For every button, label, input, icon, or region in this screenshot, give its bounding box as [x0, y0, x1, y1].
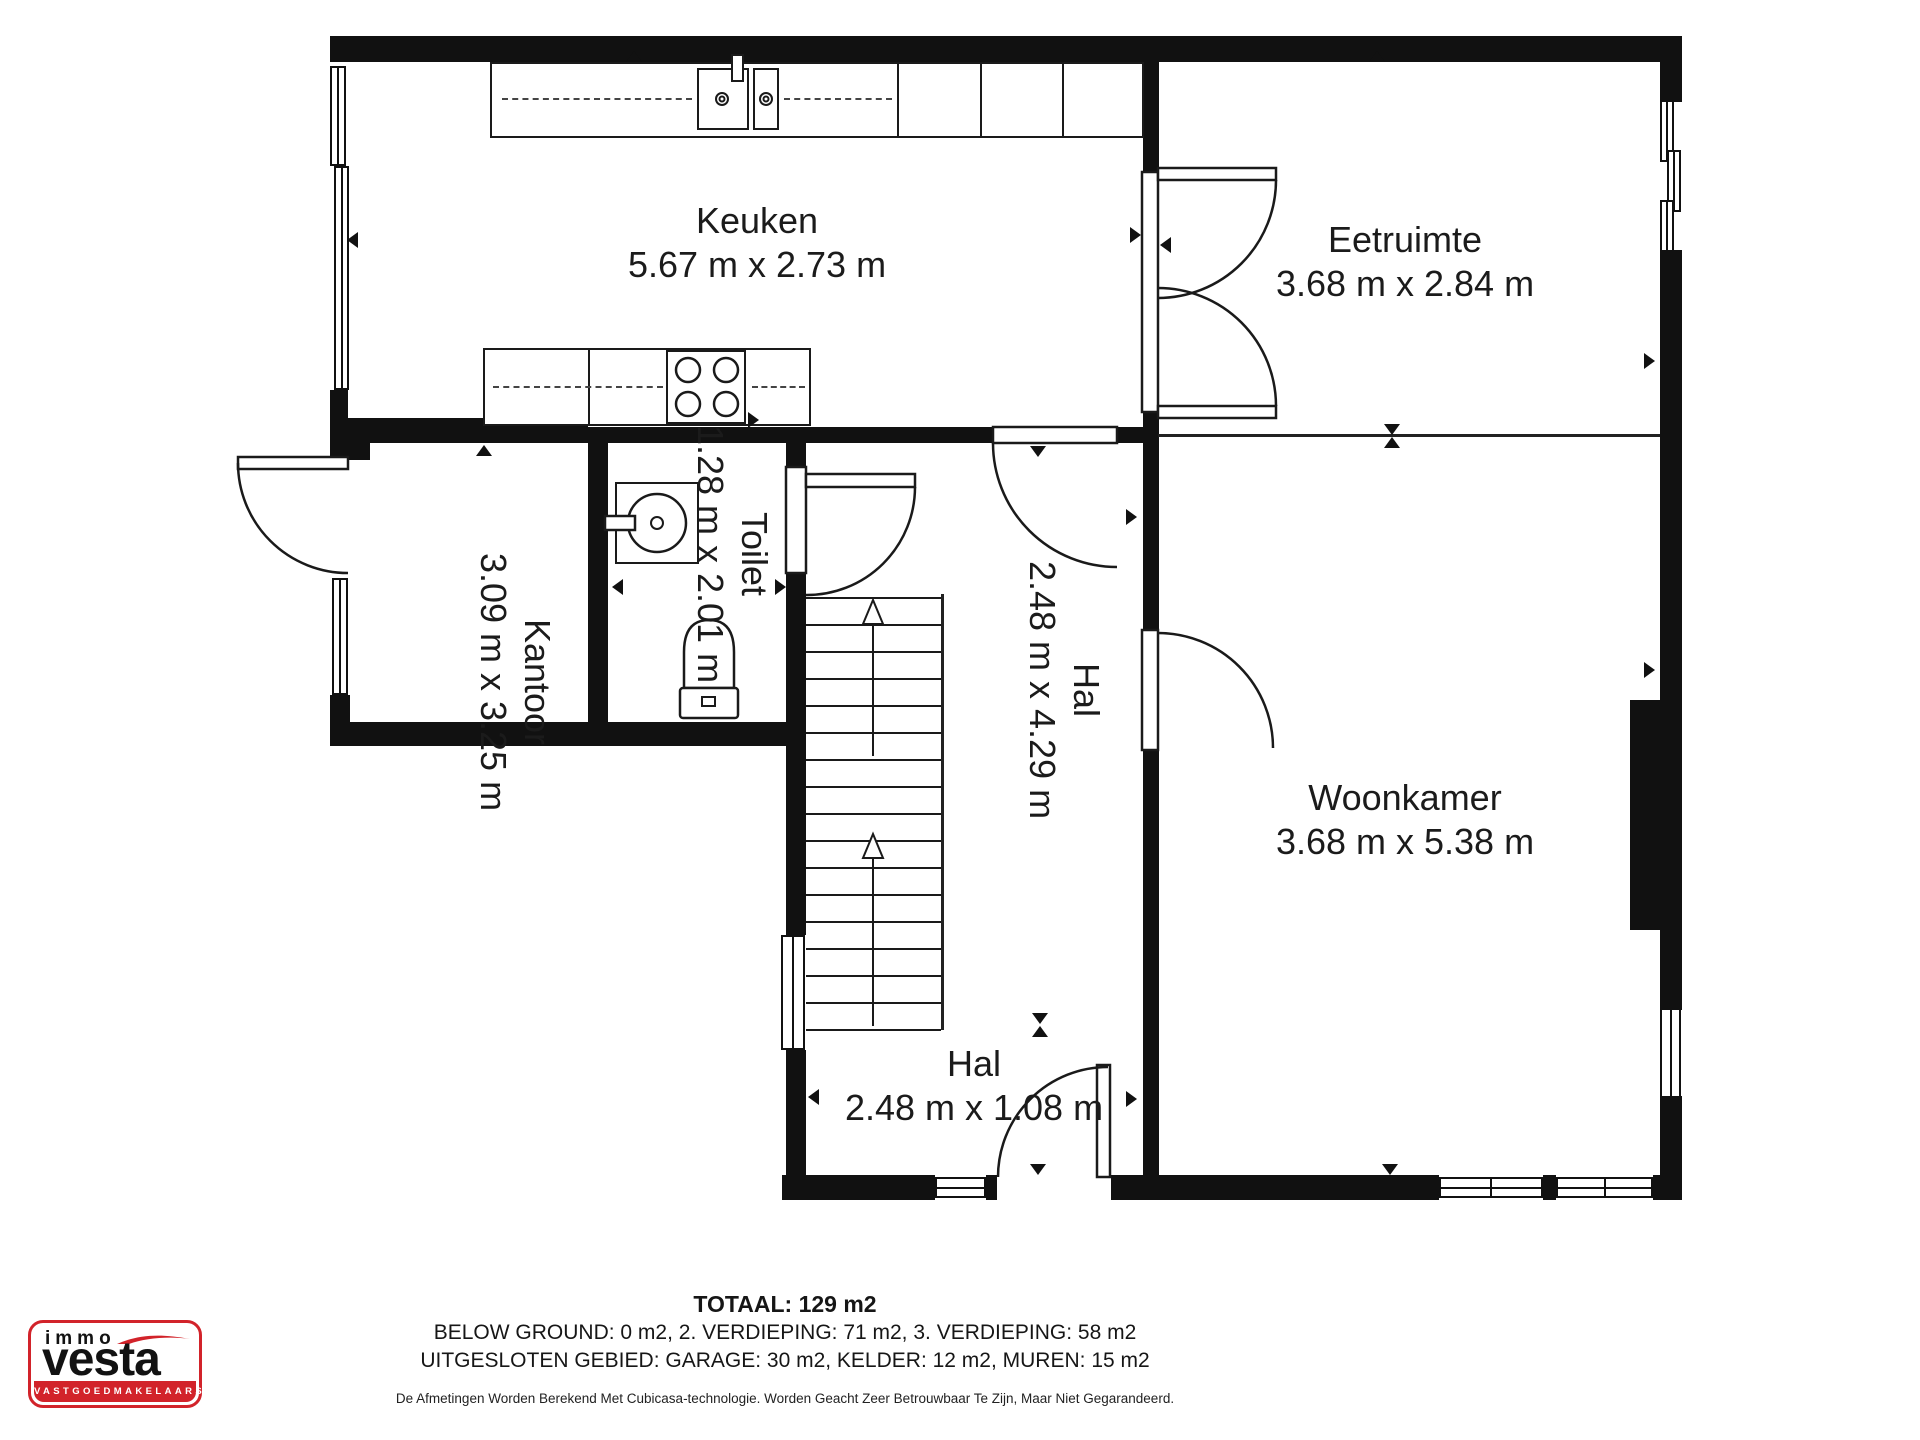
summary-total: TOTAAL: 129 m2	[0, 1291, 1570, 1318]
room-dims: 2.48 m x 1.08 m	[845, 1086, 1103, 1130]
marker-icon	[1130, 227, 1141, 243]
wall-segment	[330, 722, 806, 746]
marker-icon	[1126, 509, 1137, 525]
summary-excluded: UITGESLOTEN GEBIED: GARAGE: 30 m2, KELDE…	[0, 1349, 1570, 1373]
marker-icon	[1126, 1091, 1137, 1107]
marker-icon	[1644, 353, 1655, 369]
room-dims: 2.48 m x 4.29 m	[1020, 561, 1064, 819]
marker-icon	[612, 579, 623, 595]
summary-disclaimer: De Afmetingen Worden Berekend Met Cubica…	[0, 1391, 1570, 1406]
room-name: Toilet	[732, 425, 776, 683]
window	[1556, 1177, 1653, 1198]
wall-segment	[986, 1175, 997, 1200]
wall-segment	[1660, 250, 1682, 1010]
wall-segment	[1653, 1175, 1682, 1200]
window	[781, 935, 805, 1050]
immo-vesta-logo: immo vesta VASTGOEDMAKELAARS	[28, 1320, 202, 1408]
room-label-hal-boven: Hal 2.48 m x 4.29 m	[1020, 561, 1108, 819]
counter-dashline	[752, 386, 805, 388]
wall-segment	[1143, 443, 1159, 630]
room-label-keuken: Keuken 5.67 m x 2.73 m	[628, 199, 886, 287]
wall-segment	[1660, 62, 1682, 102]
marker-icon	[626, 51, 642, 62]
wall-segment	[330, 443, 348, 463]
window	[935, 1177, 986, 1198]
room-dims: 1.28 m x 2.01 m	[688, 425, 732, 683]
room-dims: 5.67 m x 2.73 m	[628, 243, 886, 287]
kitchen-counter-top	[490, 62, 1144, 138]
room-boundary-line	[1158, 434, 1660, 437]
room-name: Kantoor	[515, 553, 559, 811]
wall-segment	[1117, 427, 1143, 443]
room-name: Keuken	[628, 199, 886, 243]
stove	[666, 350, 746, 424]
marker-icon	[347, 232, 358, 248]
wall-segment	[330, 36, 1682, 62]
logo-tagline: VASTGOEDMAKELAARS	[34, 1381, 196, 1402]
marker-icon	[808, 1089, 819, 1105]
wall-segment	[806, 427, 993, 443]
bathroom-vanity	[615, 482, 699, 564]
wall-segment	[1111, 1175, 1439, 1200]
counter-dashline	[784, 98, 892, 100]
wall-segment	[1143, 412, 1159, 443]
double-door-eetruimte	[1142, 168, 1276, 418]
room-name: Woonkamer	[1276, 776, 1534, 820]
chimney-breast	[1630, 700, 1662, 930]
room-name: Hal	[845, 1042, 1103, 1086]
marker-icon	[476, 445, 492, 456]
window	[330, 66, 346, 166]
marker-icon	[1644, 662, 1655, 678]
counter-dashline	[502, 98, 692, 100]
wall-segment	[1543, 1175, 1556, 1200]
room-label-toilet: Toilet 1.28 m x 2.01 m	[688, 425, 776, 683]
counter-dashline	[493, 386, 663, 388]
door-keuken-hal	[993, 427, 1117, 567]
marker-icon	[1032, 1026, 1048, 1037]
room-label-woonkamer: Woonkamer 3.68 m x 5.38 m	[1276, 776, 1534, 864]
summary-floors: BELOW GROUND: 0 m2, 2. VERDIEPING: 71 m2…	[0, 1321, 1570, 1345]
kitchen-faucet	[731, 54, 744, 82]
wall-segment	[786, 1050, 806, 1175]
window	[1439, 1177, 1543, 1198]
marker-icon	[1384, 424, 1400, 435]
stairs-up-arrow	[863, 834, 883, 1026]
wall-segment	[330, 390, 348, 418]
staircase	[806, 598, 941, 1030]
room-name: Hal	[1064, 561, 1108, 819]
room-dims: 3.68 m x 5.38 m	[1276, 820, 1534, 864]
wall-segment	[330, 695, 350, 722]
wall-segment	[786, 573, 806, 935]
stairs-up-arrow	[863, 600, 883, 756]
stair-railing-line	[941, 594, 944, 1030]
wall-segment	[588, 443, 608, 722]
door-hal-woonkamer	[1142, 630, 1273, 750]
kitchen-sink-basin	[753, 68, 779, 130]
marker-icon	[1382, 1164, 1398, 1175]
room-label-kantoor: Kantoor 3.09 m x 3.25 m	[471, 553, 559, 811]
wall-segment	[1143, 62, 1159, 172]
room-dims: 3.68 m x 2.84 m	[1276, 262, 1534, 306]
marker-icon	[775, 579, 786, 595]
marker-icon	[1032, 1013, 1048, 1024]
wall-segment	[786, 443, 806, 467]
window	[1660, 200, 1674, 252]
window	[332, 578, 348, 695]
room-name: Eetruimte	[1276, 218, 1534, 262]
floorplan-page: Keuken 5.67 m x 2.73 m Eetruimte 3.68 m …	[0, 0, 1920, 1440]
window	[1660, 1008, 1681, 1098]
room-label-hal-beneden: Hal 2.48 m x 1.08 m	[845, 1042, 1103, 1130]
marker-icon	[1369, 51, 1385, 62]
door-kantoor-exterior	[238, 457, 349, 573]
room-label-eetruimte: Eetruimte 3.68 m x 2.84 m	[1276, 218, 1534, 306]
marker-icon	[1160, 237, 1171, 253]
logo-vesta-text: vesta	[42, 1336, 160, 1384]
window	[334, 166, 349, 390]
marker-icon	[1030, 446, 1046, 457]
room-dims: 3.09 m x 3.25 m	[471, 553, 515, 811]
wall-segment	[1143, 750, 1159, 1175]
wall-segment	[782, 1175, 935, 1200]
marker-icon	[1384, 437, 1400, 448]
marker-icon	[1030, 1164, 1046, 1175]
